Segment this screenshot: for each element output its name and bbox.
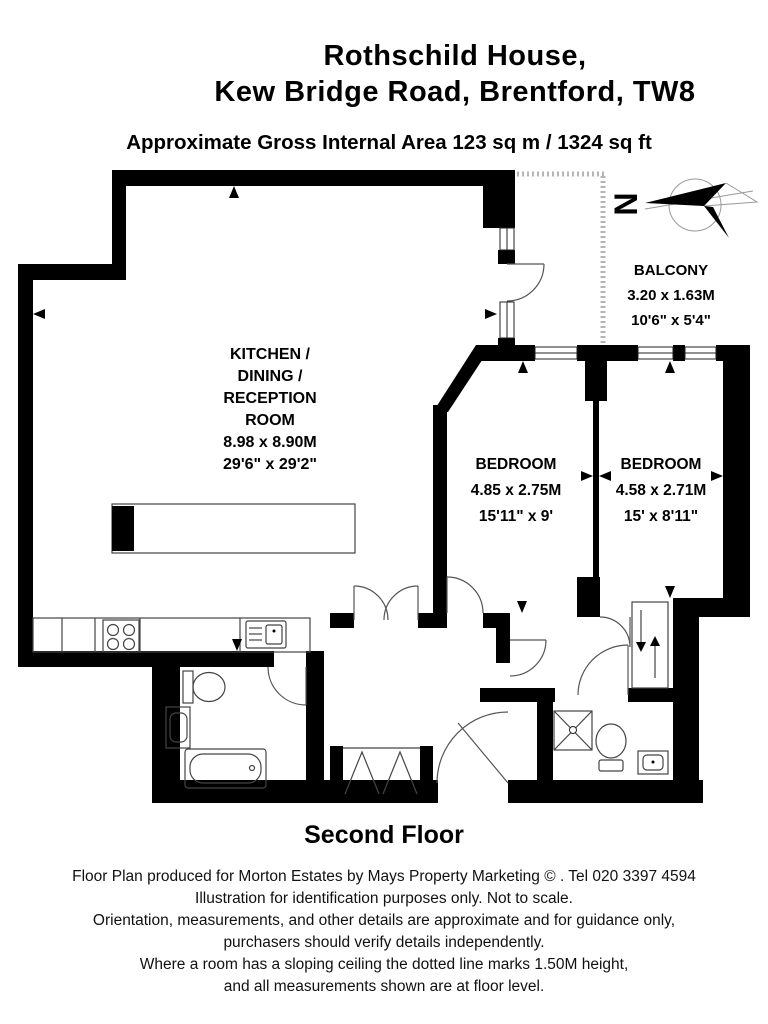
balcony-door-icon [507,264,544,301]
bedroom1-door-icon [447,577,483,613]
balcony-outline [517,174,605,345]
north-compass-icon: N [608,179,757,238]
disclaimer-line: Floor Plan produced for Morton Estates b… [0,866,768,888]
north-label: N [608,192,644,215]
disclaimer-line: Where a room has a sloping ceiling the d… [0,954,768,976]
floor-label: Second Floor [304,821,464,850]
hob-icon [103,620,139,652]
kitchen-island [112,504,355,553]
dimension-arrows [33,186,723,651]
window-icon [500,228,514,250]
disclaimer-line: and all measurements shown are at floor … [0,976,768,998]
window-icon [535,347,577,359]
room-label-kitchen: KITCHEN / DINING / RECEPTION ROOM 8.98 x… [223,344,317,476]
entrance-door-icon [437,712,508,783]
disclaimer-line: Illustration for identification purposes… [0,888,768,910]
floor-plan-document: Rothschild House, Kew Bridge Road, Brent… [0,0,768,1024]
window-icon [685,347,716,359]
hall-door-icon [510,640,546,676]
toilet2-icon [596,724,626,771]
toilet-icon [183,671,225,703]
window-icon [500,302,514,338]
room-label-bedroom2: BEDROOM 4.58 x 2.71M 15' x 8'11" [616,452,706,530]
kitchen-counter [33,618,310,652]
double-door-icon [354,586,418,620]
basin2-icon [638,751,668,774]
bathroom2-door-icon [578,645,628,695]
bathroom1-door-icon [268,667,306,705]
room-label-bedroom1: BEDROOM 4.85 x 2.75M 15'11" x 9' [471,452,561,530]
disclaimer-line: Orientation, measurements, and other det… [0,910,768,932]
disclaimer: Floor Plan produced for Morton Estates b… [0,866,768,998]
room-label-balcony: BALCONY 3.20 x 1.63M 10'6" x 5'4" [627,258,715,333]
cupboard-icon [632,602,668,688]
shower-icon [554,711,592,750]
kitchen-sink-icon [246,621,286,648]
bedroom2-door-icon [600,617,630,647]
disclaimer-line: purchasers should verify details indepen… [0,932,768,954]
window-icon [638,347,673,359]
